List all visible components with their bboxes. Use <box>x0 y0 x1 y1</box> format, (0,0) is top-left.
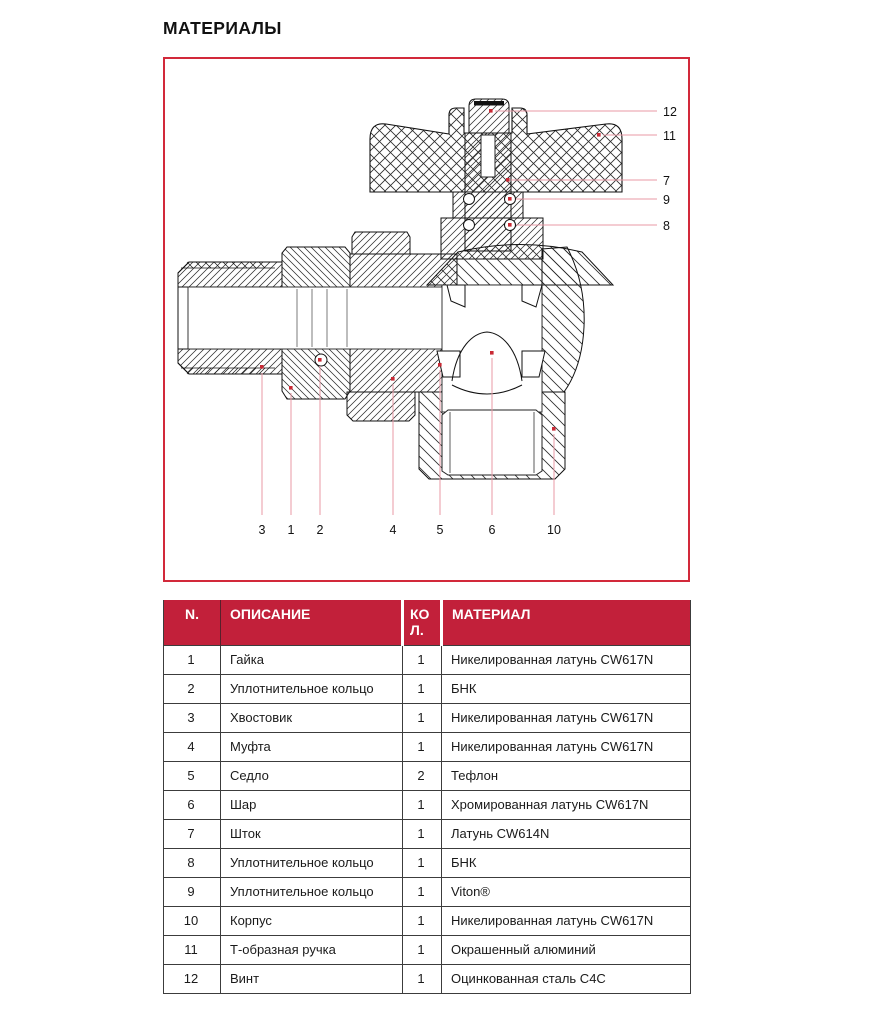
table-row: 12Винт1Оцинкованная сталь C4C <box>164 964 691 993</box>
callout-label-6: 6 <box>489 523 496 537</box>
cell-material: Хромированная латунь CW617N <box>442 790 691 819</box>
cell-desc: Т-образная ручка <box>221 935 403 964</box>
cell-n: 7 <box>164 819 221 848</box>
table-row: 2Уплотнительное кольцо1БНК <box>164 674 691 703</box>
cell-n: 2 <box>164 674 221 703</box>
cell-qty: 1 <box>403 819 442 848</box>
cell-material: Никелированная латунь CW617N <box>442 732 691 761</box>
header-cell-qty: КОЛ. <box>403 600 442 645</box>
cell-qty: 1 <box>403 645 442 674</box>
cell-desc: Корпус <box>221 906 403 935</box>
cell-desc: Муфта <box>221 732 403 761</box>
cell-n: 5 <box>164 761 221 790</box>
materials-table-header: N. ОПИСАНИЕ КОЛ. МАТЕРИАЛ <box>164 600 691 645</box>
header-cell-n: N. <box>164 600 221 645</box>
callout-label-3: 3 <box>259 523 266 537</box>
cell-material: БНК <box>442 848 691 877</box>
table-row: 10Корпус1Никелированная латунь CW617N <box>164 906 691 935</box>
materials-table-body: 1Гайка1Никелированная латунь CW617N2Упло… <box>164 645 691 993</box>
cell-material: Никелированная латунь CW617N <box>442 703 691 732</box>
cell-material: Viton® <box>442 877 691 906</box>
cell-desc: Шар <box>221 790 403 819</box>
valve-cross-section-drawing: 12 11 7 9 8 3 1 2 4 5 6 10 <box>165 59 688 580</box>
header-cell-desc: ОПИСАНИЕ <box>221 600 403 645</box>
cell-desc: Гайка <box>221 645 403 674</box>
cell-desc: Уплотнительное кольцо <box>221 848 403 877</box>
page-title: МАТЕРИАЛЫ <box>163 18 282 39</box>
cell-n: 8 <box>164 848 221 877</box>
callout-label-4: 4 <box>390 523 397 537</box>
cell-material: Оцинкованная сталь C4C <box>442 964 691 993</box>
header-row: N. ОПИСАНИЕ КОЛ. МАТЕРИАЛ <box>164 600 691 645</box>
cell-n: 3 <box>164 703 221 732</box>
cell-desc: Шток <box>221 819 403 848</box>
cell-qty: 1 <box>403 790 442 819</box>
cell-n: 1 <box>164 645 221 674</box>
cell-desc: Уплотнительное кольцо <box>221 877 403 906</box>
cell-qty: 1 <box>403 906 442 935</box>
cell-material: БНК <box>442 674 691 703</box>
cell-n: 9 <box>164 877 221 906</box>
callout-label-1: 1 <box>288 523 295 537</box>
cell-material: Никелированная латунь CW617N <box>442 906 691 935</box>
valve-parts <box>178 99 622 479</box>
callout-label-7: 7 <box>663 174 670 188</box>
cell-desc: Хвостовик <box>221 703 403 732</box>
table-row: 9Уплотнительное кольцо1Viton® <box>164 877 691 906</box>
callout-label-11: 11 <box>663 129 676 143</box>
callout-label-2: 2 <box>317 523 324 537</box>
callout-label-12: 12 <box>663 105 677 119</box>
header-cell-material: МАТЕРИАЛ <box>442 600 691 645</box>
table-row: 4Муфта1Никелированная латунь CW617N <box>164 732 691 761</box>
cell-material: Окрашенный алюминий <box>442 935 691 964</box>
cell-qty: 1 <box>403 703 442 732</box>
table-row: 8Уплотнительное кольцо1БНК <box>164 848 691 877</box>
table-row: 3Хвостовик1Никелированная латунь CW617N <box>164 703 691 732</box>
table-row: 5Седло2Тефлон <box>164 761 691 790</box>
callout-label-10: 10 <box>547 523 561 537</box>
cell-material: Никелированная латунь CW617N <box>442 645 691 674</box>
callout-label-8: 8 <box>663 219 670 233</box>
cell-qty: 1 <box>403 877 442 906</box>
cell-desc: Уплотнительное кольцо <box>221 674 403 703</box>
cell-qty: 1 <box>403 964 442 993</box>
materials-table: N. ОПИСАНИЕ КОЛ. МАТЕРИАЛ 1Гайка1Никелир… <box>163 600 691 994</box>
cell-n: 12 <box>164 964 221 993</box>
cell-qty: 1 <box>403 674 442 703</box>
valve-drawing-figure: 12 11 7 9 8 3 1 2 4 5 6 10 <box>163 57 690 582</box>
table-row: 7Шток1Латунь CW614N <box>164 819 691 848</box>
cell-n: 6 <box>164 790 221 819</box>
cell-qty: 1 <box>403 732 442 761</box>
table-row: 6Шар1Хромированная латунь CW617N <box>164 790 691 819</box>
cell-desc: Седло <box>221 761 403 790</box>
cell-material: Тефлон <box>442 761 691 790</box>
table-row: 11Т-образная ручка1Окрашенный алюминий <box>164 935 691 964</box>
cell-qty: 2 <box>403 761 442 790</box>
callout-label-5: 5 <box>437 523 444 537</box>
cell-qty: 1 <box>403 848 442 877</box>
cell-n: 4 <box>164 732 221 761</box>
table-row: 1Гайка1Никелированная латунь CW617N <box>164 645 691 674</box>
cell-material: Латунь CW614N <box>442 819 691 848</box>
cell-n: 11 <box>164 935 221 964</box>
cell-n: 10 <box>164 906 221 935</box>
cell-qty: 1 <box>403 935 442 964</box>
cell-desc: Винт <box>221 964 403 993</box>
callout-label-9: 9 <box>663 193 670 207</box>
